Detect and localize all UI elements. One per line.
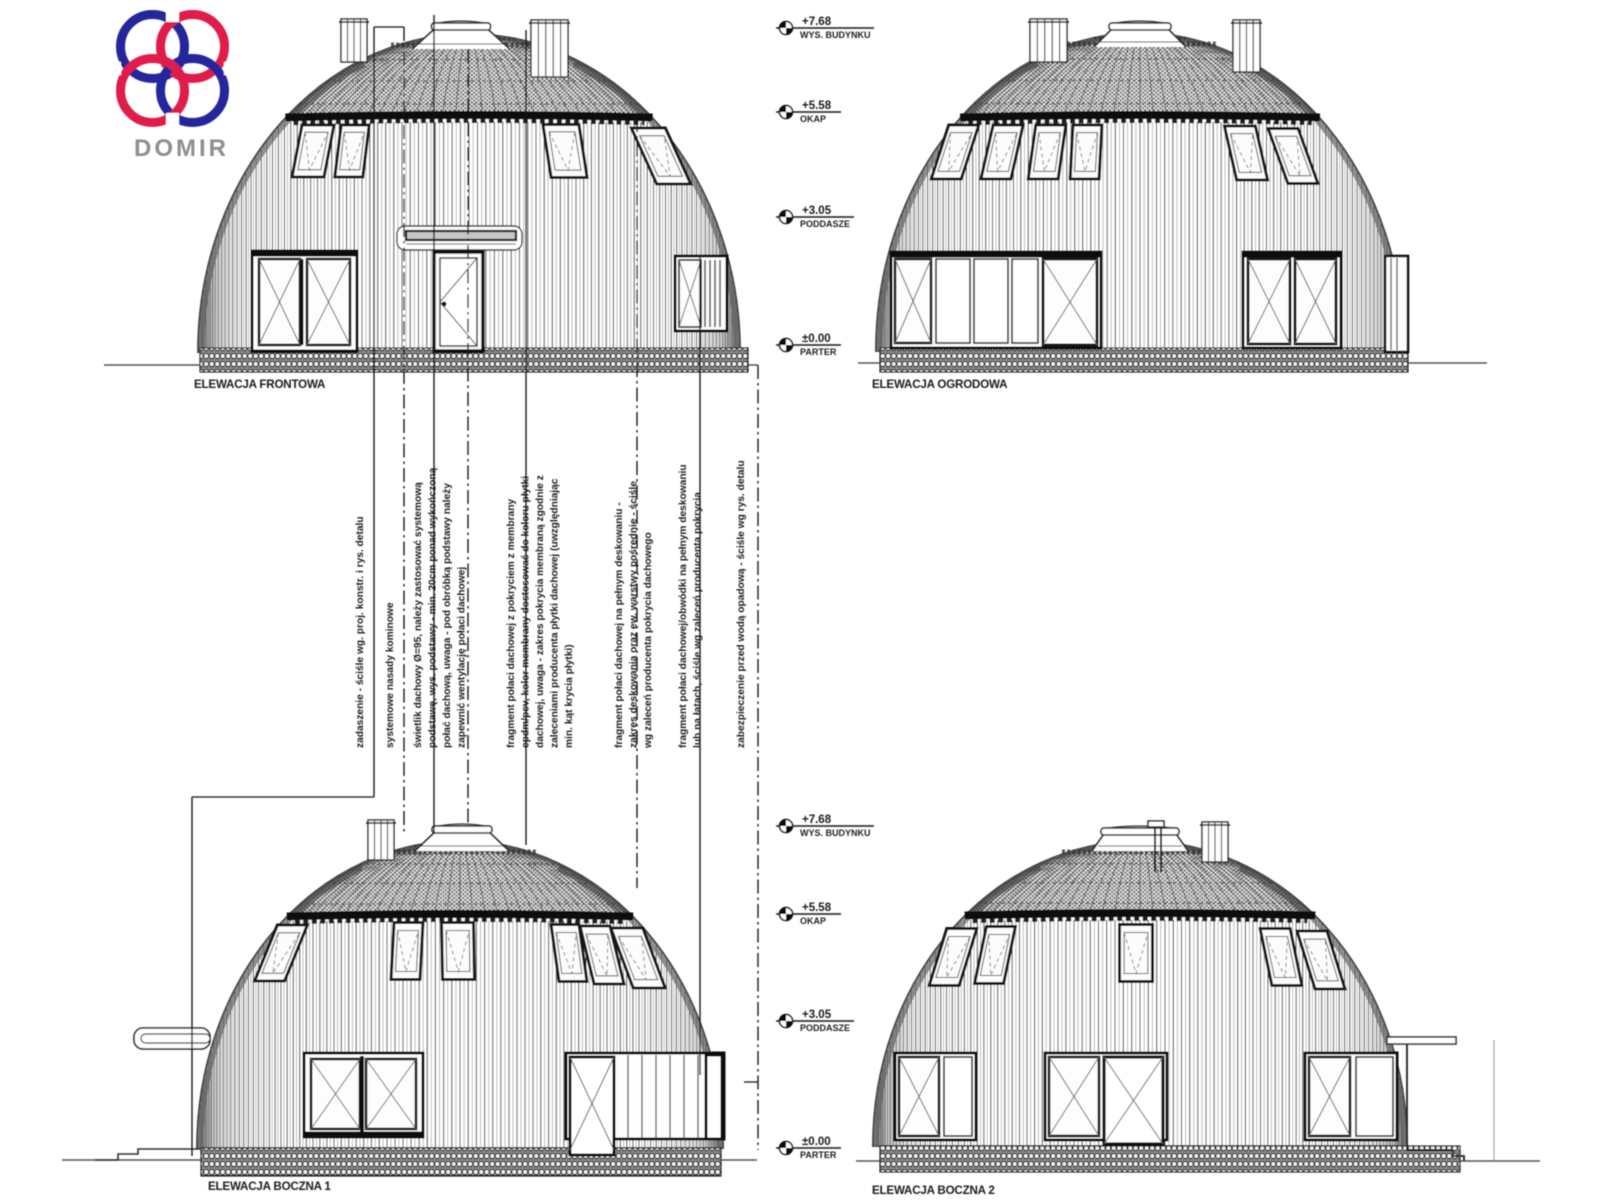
svg-text:lub na łatach, ściśle wg zalec: lub na łatach, ściśle wg zaleceń produce…: [693, 492, 704, 748]
svg-text:fragment połaci dachowej z pok: fragment połaci dachowej z pokryciem z m…: [506, 499, 517, 748]
svg-text:zabezpieczenie przed wodą opad: zabezpieczenie przed wodą opadową - ściś…: [736, 460, 747, 748]
svg-text:min. kąt krycia płytki): min. kąt krycia płytki): [564, 644, 575, 748]
svg-text:fragment połaci dachowej na pe: fragment połaci dachowej na pełnym desko…: [614, 502, 625, 748]
svg-text:systemowe nasady kominowe: systemowe nasady kominowe: [385, 602, 396, 748]
svg-text:dachowej, uwaga - zakres pokry: dachowej, uwaga - zakres pokrycia membra…: [535, 475, 546, 748]
svg-text:ELEWACJA BOCZNA 2: ELEWACJA BOCZNA 2: [872, 1184, 995, 1197]
svg-text:ELEWACJA FRONTOWA: ELEWACJA FRONTOWA: [194, 378, 326, 391]
svg-text:+5.58: +5.58: [802, 902, 832, 914]
svg-text:ELEWACJA BOCZNA 1: ELEWACJA BOCZNA 1: [208, 1180, 331, 1193]
svg-text:DOMIR: DOMIR: [134, 135, 229, 162]
svg-text:podstawę, wys. podstawy - min.: podstawę, wys. podstawy - min. 20cm pona…: [428, 467, 439, 748]
svg-text:OKAP: OKAP: [800, 114, 826, 124]
svg-text:+5.58: +5.58: [802, 100, 832, 112]
svg-text:+7.68: +7.68: [802, 814, 832, 826]
svg-text:PARTER: PARTER: [800, 347, 837, 357]
svg-text:PODDASZE: PODDASZE: [800, 219, 850, 229]
svg-text:WYS. BUDYNKU: WYS. BUDYNKU: [800, 30, 871, 40]
svg-text:+7.68: +7.68: [802, 16, 832, 28]
svg-text:wg zaleceń producenta pokrycia: wg zaleceń producenta pokrycia dachowego: [643, 532, 654, 749]
svg-text:ELEWACJA OGRODOWA: ELEWACJA OGRODOWA: [872, 378, 1008, 391]
svg-text:PODDASZE: PODDASZE: [800, 1023, 850, 1033]
svg-text:OKAP: OKAP: [800, 916, 826, 926]
svg-text:+3.05: +3.05: [802, 205, 832, 217]
svg-text:połać dachową, uwaga - pod obr: połać dachową, uwaga - pod obróbką podst…: [442, 483, 453, 748]
svg-text:+3.05: +3.05: [802, 1009, 832, 1021]
svg-text:zapewnić wentylację połaci dac: zapewnić wentylację połaci dachowej: [457, 567, 468, 748]
svg-text:zakres deskowania oraz ew. war: zakres deskowania oraz ew. warstwy pośre…: [629, 481, 640, 748]
svg-text:zadaszenie - ściśle wg. proj.: zadaszenie - ściśle wg. proj. konstr. i …: [355, 516, 366, 748]
svg-text:WYS. BUDYNKU: WYS. BUDYNKU: [800, 828, 871, 838]
svg-text:epdm/pcv, kolor membrany dosto: epdm/pcv, kolor membrany dostosować do k…: [521, 476, 532, 748]
svg-text:zaleceniami producenta płytki: zaleceniami producenta płytki dachowej (…: [550, 478, 561, 748]
svg-text:±0.00: ±0.00: [802, 1136, 831, 1148]
svg-text:fragment połaci dachowej/obwód: fragment połaci dachowej/obwódki na pełn…: [678, 464, 689, 748]
svg-text:±0.00: ±0.00: [802, 333, 831, 345]
svg-text:świetlik dachowy Ø=95, należy: świetlik dachowy Ø=95, należy zastosować…: [413, 482, 424, 748]
svg-text:PARTER: PARTER: [800, 1150, 837, 1160]
